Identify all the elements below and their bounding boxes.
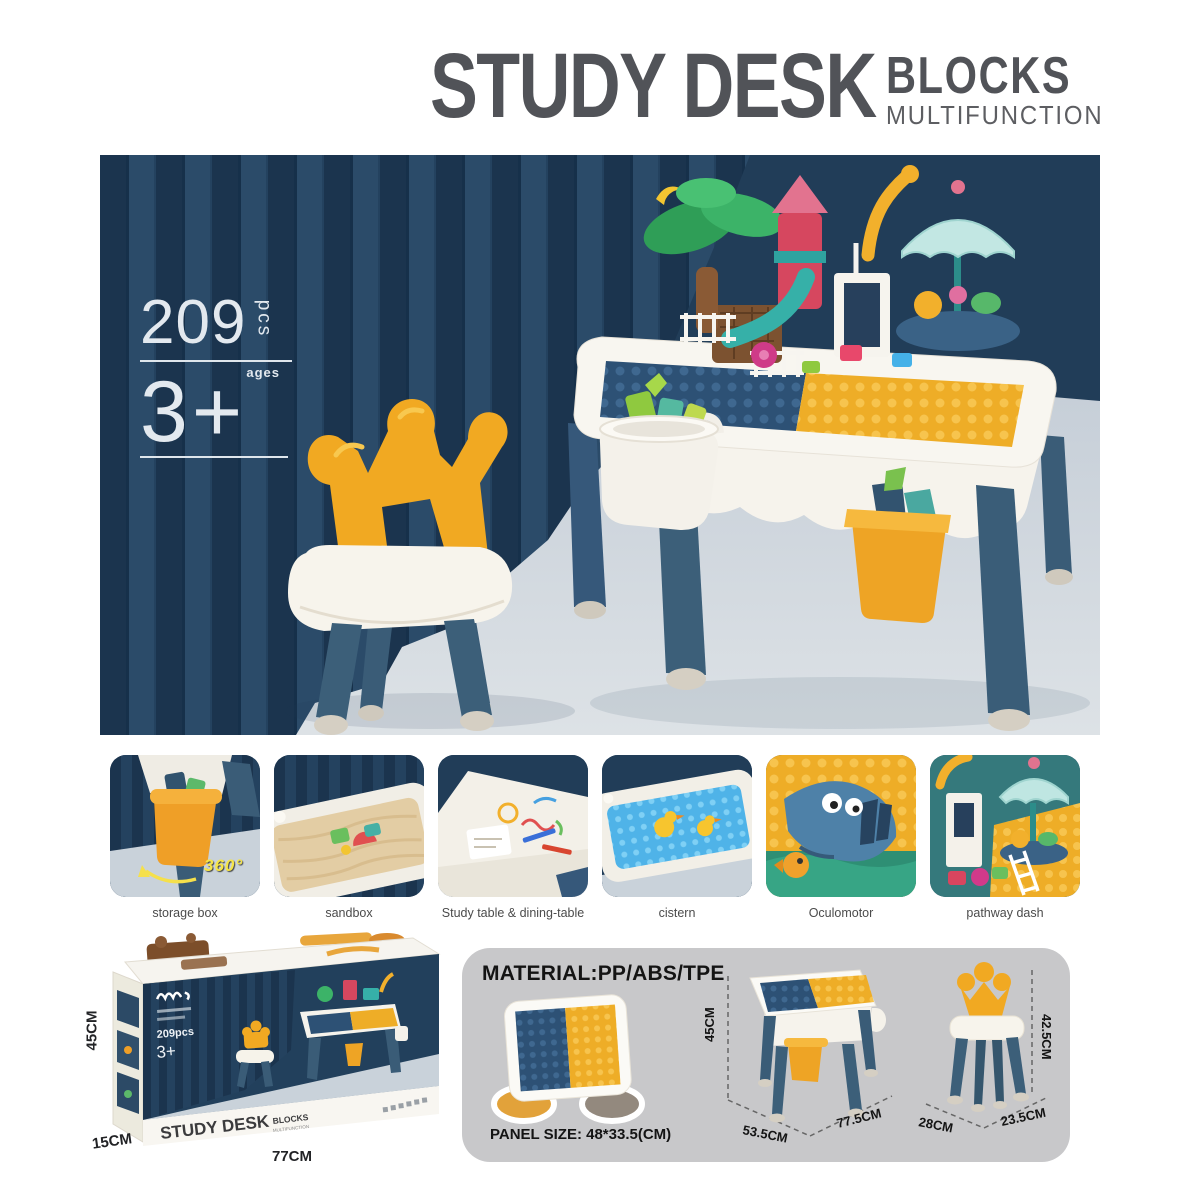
box-height-dim: 45CM	[84, 1010, 101, 1050]
page-tagline: MULTIFUNCTION	[886, 100, 1103, 131]
piece-count: 209	[140, 292, 246, 354]
feature-caption: cistern	[592, 906, 762, 920]
table-depth-dim: 53.5CM	[741, 1122, 789, 1145]
feature-sandbox	[274, 755, 424, 897]
chair-figure	[947, 962, 1029, 1112]
feature-caption: pathway dash	[920, 906, 1090, 920]
chair-depth-dim: 28CM	[917, 1114, 954, 1135]
page-subtitle: BLOCKS	[886, 46, 1071, 106]
panel-size-label: PANEL SIZE: 48*33.5(CM)	[490, 1126, 671, 1143]
feature-caption: Oculomotor	[756, 906, 926, 920]
feature-pathway-dash	[930, 755, 1080, 897]
age-value: 3+	[140, 372, 310, 454]
panel-diagram	[472, 992, 672, 1124]
piece-count-badge: 209 pcs ages 3+	[140, 292, 310, 458]
feature-caption: sandbox	[264, 906, 434, 920]
feature-study-table	[438, 755, 588, 897]
page-title: STUDY DESK	[430, 34, 876, 139]
feature-cistern	[602, 755, 752, 897]
piece-unit: pcs	[253, 300, 275, 339]
box-width-dim: 77CM	[272, 1148, 312, 1165]
chair-dimension-diagram: 42.5CM 28CM 23.5CM	[900, 956, 1070, 1154]
chair-height-dim: 42.5CM	[1039, 1014, 1054, 1060]
spec-panel: MATERIAL:PP/ABS/TPE PANEL SIZE: 48*33.5(…	[462, 948, 1070, 1162]
rotation-degree-label: 360°	[204, 856, 243, 876]
chair-seat	[288, 545, 512, 631]
chair-width-dim: 23.5CM	[1000, 1105, 1048, 1129]
feature-oculomotor	[766, 755, 916, 897]
table-height-dim: 45CM	[702, 1007, 717, 1042]
table-dimension-diagram: 45CM 53.5CM 77.5CM	[680, 950, 905, 1155]
badge-divider	[140, 360, 292, 362]
product-poster: STUDY DESK BLOCKS MULTIFUNCTION	[0, 0, 1200, 1200]
feature-caption: storage box	[100, 906, 270, 920]
feature-caption: Study table & dining-table	[428, 906, 598, 920]
box-age: 3+	[156, 1041, 177, 1062]
packaging-box: 209pcs 3+ STUDY DESK BLOCKS MULTIFUNCTIO…	[95, 928, 470, 1163]
